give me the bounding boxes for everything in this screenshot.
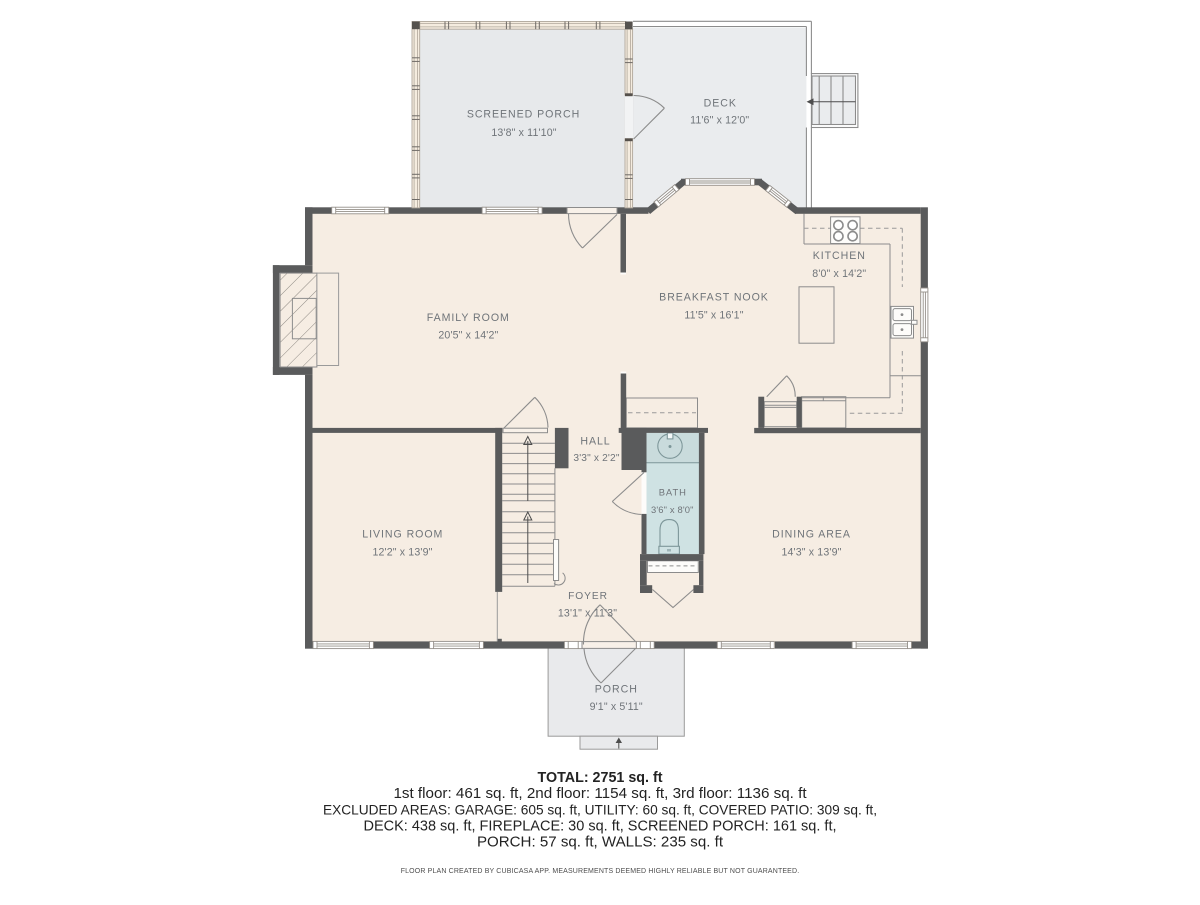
- svg-text:DECK: 438 sq. ft, FIREPLACE: 3: DECK: 438 sq. ft, FIREPLACE: 30 sq. ft, …: [363, 818, 836, 834]
- svg-text:8'0" x 14'2": 8'0" x 14'2": [812, 268, 866, 280]
- svg-text:BATH: BATH: [659, 487, 687, 498]
- svg-text:KITCHEN: KITCHEN: [813, 250, 866, 262]
- svg-text:9'1" x 5'11": 9'1" x 5'11": [590, 701, 643, 713]
- svg-text:14'3" x 13'9": 14'3" x 13'9": [781, 546, 841, 558]
- svg-text:3'6" x 8'0": 3'6" x 8'0": [651, 504, 694, 515]
- svg-text:DECK: DECK: [704, 97, 737, 109]
- svg-text:HALL: HALL: [580, 436, 610, 448]
- svg-text:BREAKFAST NOOK: BREAKFAST NOOK: [659, 292, 769, 304]
- svg-text:FAMILY ROOM: FAMILY ROOM: [427, 312, 510, 324]
- svg-text:11'5" x 16'1": 11'5" x 16'1": [684, 310, 743, 322]
- svg-text:1st floor: 461 sq. ft, 2nd flo: 1st floor: 461 sq. ft, 2nd floor: 1154 s…: [393, 785, 807, 802]
- svg-text:12'2" x 13'9": 12'2" x 13'9": [372, 547, 432, 559]
- svg-text:3'3" x 2'2": 3'3" x 2'2": [573, 453, 619, 464]
- svg-text:13'1" x 11'3": 13'1" x 11'3": [558, 608, 617, 620]
- svg-text:13'8" x 11'10": 13'8" x 11'10": [491, 127, 556, 139]
- svg-text:DINING AREA: DINING AREA: [772, 529, 851, 541]
- svg-text:TOTAL: 2751 sq. ft: TOTAL: 2751 sq. ft: [538, 770, 663, 786]
- svg-text:SCREENED PORCH: SCREENED PORCH: [467, 108, 580, 120]
- svg-text:EXCLUDED AREAS: GARAGE: 605 sq: EXCLUDED AREAS: GARAGE: 605 sq. ft, UTIL…: [323, 802, 877, 817]
- svg-text:20'5" x 14'2": 20'5" x 14'2": [438, 329, 498, 341]
- svg-text:FLOOR PLAN CREATED BY CUBICASA: FLOOR PLAN CREATED BY CUBICASA APP. MEAS…: [401, 868, 800, 875]
- svg-text:PORCH: PORCH: [595, 684, 638, 696]
- svg-text:11'6" x 12'0": 11'6" x 12'0": [690, 115, 749, 127]
- svg-text:LIVING ROOM: LIVING ROOM: [362, 528, 443, 540]
- svg-text:PORCH: 57 sq. ft, WALLS: 235 s: PORCH: 57 sq. ft, WALLS: 235 sq. ft: [477, 833, 724, 850]
- svg-text:FOYER: FOYER: [568, 591, 608, 602]
